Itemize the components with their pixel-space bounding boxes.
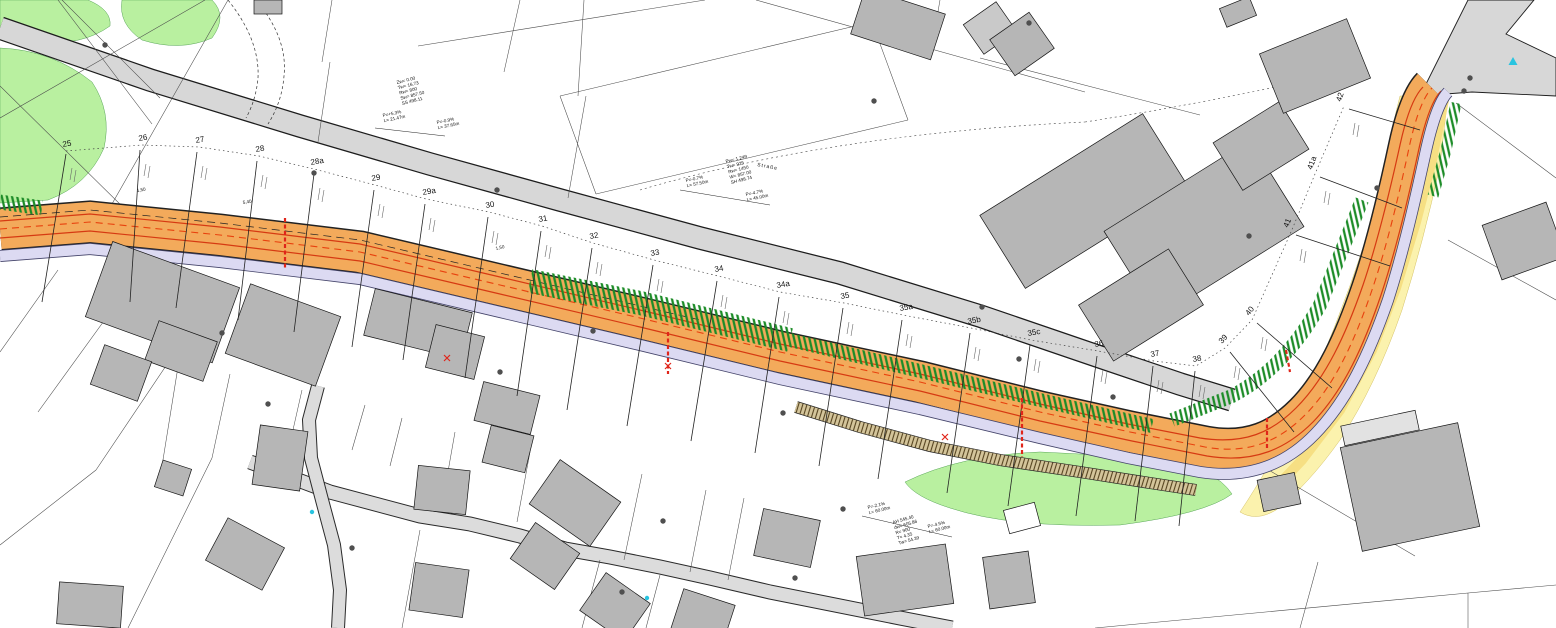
station-label: 35a bbox=[899, 302, 914, 313]
station-tick bbox=[1038, 361, 1040, 373]
annotation-block: P=+5.3%L= 21.47m bbox=[382, 109, 406, 124]
station-tick bbox=[787, 313, 789, 325]
station-tick bbox=[847, 322, 849, 334]
station-tick bbox=[496, 233, 498, 245]
building bbox=[983, 551, 1036, 609]
annotation-block: P=-0.9%L= 37.65m bbox=[436, 116, 460, 131]
station-tick bbox=[1300, 249, 1302, 261]
boundary-dot bbox=[497, 369, 502, 374]
station-tick bbox=[910, 336, 912, 348]
boundary-dot bbox=[660, 518, 665, 523]
station-label: 41a bbox=[1305, 155, 1318, 171]
station-label: 31 bbox=[538, 213, 549, 224]
building bbox=[154, 460, 191, 496]
boundary-dot bbox=[311, 170, 316, 175]
station-label: 39 bbox=[1217, 332, 1230, 345]
cyan-dot-marker bbox=[310, 510, 314, 514]
building bbox=[474, 382, 540, 435]
boundary-dot bbox=[1026, 20, 1031, 25]
building bbox=[57, 582, 124, 628]
boundary-dot bbox=[1110, 394, 1115, 399]
station-tick bbox=[549, 247, 551, 259]
station-tick bbox=[657, 279, 659, 291]
station-tick bbox=[1034, 359, 1036, 371]
boundary-dot bbox=[979, 304, 984, 309]
station-tick bbox=[1105, 372, 1107, 384]
station-label: 32 bbox=[589, 230, 600, 241]
station-tick bbox=[318, 188, 320, 200]
station-tick bbox=[433, 220, 435, 232]
boundary-dot bbox=[494, 187, 499, 192]
station-label: 26 bbox=[138, 132, 149, 143]
boundary-dot bbox=[349, 545, 354, 550]
building bbox=[205, 518, 284, 590]
station-label: 27 bbox=[195, 134, 206, 145]
building bbox=[1259, 19, 1370, 114]
station-label: 34a bbox=[776, 279, 791, 290]
building bbox=[225, 284, 341, 386]
station-label: 28 bbox=[255, 143, 266, 154]
station-label: 34 bbox=[714, 263, 725, 274]
building bbox=[851, 0, 946, 60]
boundary-dot bbox=[1246, 233, 1251, 238]
station-tick bbox=[1265, 339, 1267, 351]
building bbox=[252, 425, 308, 491]
building bbox=[425, 325, 484, 380]
annotation-leader-line bbox=[375, 128, 445, 136]
station-tick bbox=[596, 262, 598, 274]
building bbox=[1482, 202, 1556, 280]
building bbox=[671, 589, 735, 628]
station-label: 33 bbox=[650, 247, 661, 258]
station-tick bbox=[201, 166, 203, 178]
station-tick bbox=[1324, 191, 1326, 203]
boundary-dot bbox=[590, 328, 595, 333]
building bbox=[754, 508, 821, 567]
buildings-layer bbox=[57, 0, 1556, 628]
boundary-dot bbox=[219, 330, 224, 335]
station-tick bbox=[725, 297, 727, 309]
street-name-label: Straße bbox=[757, 162, 779, 172]
station-tick bbox=[661, 281, 663, 293]
annotation-block: P=-4.7%L= 45.00m bbox=[745, 188, 769, 203]
embankment-hatch bbox=[0, 202, 42, 208]
boundary-dot bbox=[840, 506, 845, 511]
station-tick bbox=[261, 175, 263, 187]
station-label: 28a bbox=[310, 156, 325, 167]
annotation-block: Zw= 0.00Tw= 16.73Rw= 800Sw= 857.50SS 498… bbox=[396, 74, 427, 106]
station-label: 30 bbox=[485, 199, 496, 210]
station-tick bbox=[851, 324, 853, 336]
station-tick bbox=[205, 168, 207, 180]
building bbox=[580, 573, 651, 628]
building bbox=[1219, 0, 1256, 27]
station-tick bbox=[1238, 368, 1240, 380]
station-tick bbox=[265, 177, 267, 189]
station-tick bbox=[974, 347, 976, 359]
annotation-block: P=-2.1%L= 60.00m bbox=[867, 500, 891, 515]
junction-area bbox=[1420, 0, 1556, 96]
station-label: 29a bbox=[422, 186, 437, 197]
station-tick bbox=[1101, 370, 1103, 382]
cyan-dot-marker bbox=[645, 596, 649, 600]
annotation-block: Pw= 1.249Tw= 925Rw= 1450W= 857.00SH 498.… bbox=[725, 154, 754, 185]
boundary-dot bbox=[1461, 88, 1466, 93]
annotation-block: P=-0.7%L= 57.50m bbox=[685, 174, 709, 189]
station-tick bbox=[148, 166, 150, 178]
station-label: 38 bbox=[1192, 353, 1203, 364]
station-label: 37 bbox=[1150, 348, 1161, 359]
boundary-dot bbox=[780, 410, 785, 415]
station-tick bbox=[600, 264, 602, 276]
station-tick bbox=[322, 190, 324, 202]
station-tick bbox=[906, 334, 908, 346]
building bbox=[409, 562, 469, 617]
boundary-dot bbox=[1016, 356, 1021, 361]
station-tick bbox=[1328, 193, 1330, 205]
boundary-dot bbox=[871, 98, 876, 103]
station-tick bbox=[978, 349, 980, 361]
red-marker-x bbox=[942, 434, 948, 440]
station-tick bbox=[783, 311, 785, 323]
station-label: 29 bbox=[371, 172, 382, 183]
boundary-dot bbox=[792, 575, 797, 580]
boundary-dot bbox=[265, 401, 270, 406]
station-label: 42 bbox=[1334, 91, 1345, 103]
station-tick bbox=[545, 245, 547, 257]
station-label: 35 bbox=[840, 290, 851, 301]
boundary-dot bbox=[102, 42, 107, 47]
station-tick bbox=[378, 204, 380, 216]
building bbox=[254, 0, 282, 14]
building bbox=[414, 465, 470, 514]
width-label: 1,50 bbox=[495, 244, 505, 251]
building bbox=[90, 345, 151, 402]
side-street bbox=[309, 386, 340, 628]
building bbox=[856, 544, 953, 616]
station-tick bbox=[721, 295, 723, 307]
annotation-block: AH 545.40dw= 605.86R= 900T= 4.35Tw= 54.3… bbox=[892, 513, 923, 545]
station-tick bbox=[1234, 366, 1236, 378]
site-plan-canvas: 2526272828a2929a303132333434a3535a35b35c… bbox=[0, 0, 1556, 628]
station-tick bbox=[1304, 251, 1306, 263]
station-tick bbox=[382, 206, 384, 218]
boundary-dot bbox=[619, 589, 624, 594]
width-label: 1,50 bbox=[136, 187, 146, 193]
green-area bbox=[121, 0, 220, 46]
site-plan-page: 2526272828a2929a303132333434a3535a35b35c… bbox=[0, 0, 1556, 628]
station-tick bbox=[1261, 337, 1263, 349]
boundary-dot bbox=[1374, 185, 1379, 190]
station-tick bbox=[144, 164, 146, 176]
station-tick bbox=[1357, 125, 1359, 137]
station-tick bbox=[1353, 123, 1355, 135]
station-tick bbox=[429, 218, 431, 230]
station-tick bbox=[492, 231, 494, 243]
width-label: 5,40 bbox=[242, 199, 252, 205]
boundary-dot bbox=[1467, 75, 1472, 80]
